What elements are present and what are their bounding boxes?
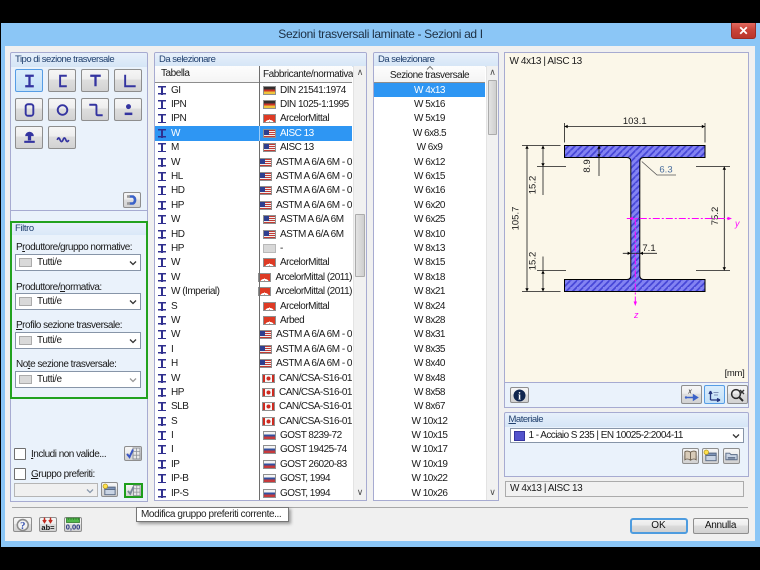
svg-text:y: y (734, 219, 740, 229)
svg-text:i: i (518, 391, 521, 402)
svg-text:75.2: 75.2 (710, 207, 721, 226)
svg-text:ab=: ab= (41, 523, 55, 531)
svg-text:x: x (687, 388, 692, 395)
svg-text:z: z (633, 310, 639, 320)
svg-text:105.7: 105.7 (511, 207, 522, 231)
svg-text:0,00: 0,00 (65, 523, 80, 532)
svg-text:103.1: 103.1 (623, 116, 647, 127)
svg-text:?: ? (20, 519, 25, 531)
svg-text:7.1: 7.1 (642, 243, 655, 254)
svg-text:15.2: 15.2 (528, 176, 539, 195)
svg-text:15.2: 15.2 (528, 252, 539, 271)
svg-text:8.9: 8.9 (582, 159, 593, 172)
svg-text:6.3: 6.3 (659, 165, 672, 176)
